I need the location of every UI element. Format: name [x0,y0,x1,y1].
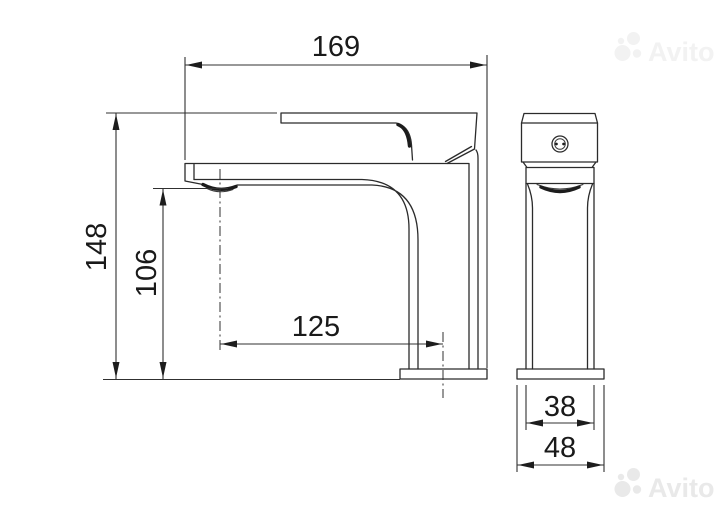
lever-outline [281,113,477,164]
watermark-top-right: Avito [615,32,715,67]
arrowhead-bottom [113,362,120,378]
arrowhead-right [426,341,442,348]
dimension-label-106: 106 [131,249,163,297]
screw-button [552,136,568,152]
arrowhead-top [113,114,120,130]
dimension-label-38: 38 [544,391,576,423]
arrowhead-right [577,420,593,427]
body-right-wall [469,150,478,369]
arrowhead-right [587,462,603,469]
button-dot-right [562,143,565,146]
dimension-label-148: 148 [81,223,113,271]
head-cap [522,114,598,124]
arrowhead-left [518,462,534,469]
lever-corner-shade [398,125,410,147]
arrowhead-right [470,62,486,69]
arrowhead-top [160,190,167,206]
base-side [517,369,604,379]
dimension-label-169: 169 [312,31,360,63]
dimension-overall-height: 148 [81,113,277,379]
avito-logo-icon [615,32,642,61]
watermark-brand-text: Avito [648,37,715,67]
dimension-label-48: 48 [544,432,576,464]
dimension-body-width: 38 [526,385,594,430]
column-side [526,184,594,370]
watermark-bottom-right: Avito [615,468,715,503]
avito-logo-icon [615,468,642,497]
arrowhead-left [221,341,237,348]
head-body [522,123,598,162]
handle-lever [281,113,477,164]
spout-tip [537,185,583,192]
button-dot-left [555,143,558,146]
body-outline [185,164,469,185]
arrowhead-left [186,62,202,69]
screenshot-canvas: 169 148 106 125 38 48 [0,0,720,508]
watermark-brand-text: Avito [648,473,715,503]
technical-drawing: 169 148 106 125 38 48 [0,0,720,508]
arrowhead-bottom [160,362,167,378]
dimension-label-125: 125 [292,311,340,343]
dimension-outlet-height: 106 [131,189,228,380]
side-view [517,114,604,380]
arrowhead-left [527,420,543,427]
collar [523,162,596,184]
